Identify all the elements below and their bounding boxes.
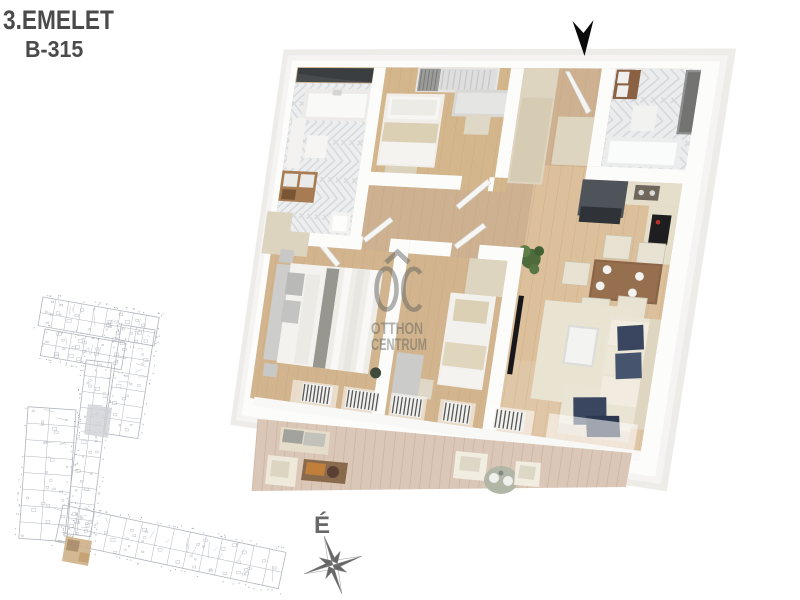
svg-text:É: É (314, 511, 330, 539)
svg-text:CENTRUM: CENTRUM (371, 336, 427, 354)
